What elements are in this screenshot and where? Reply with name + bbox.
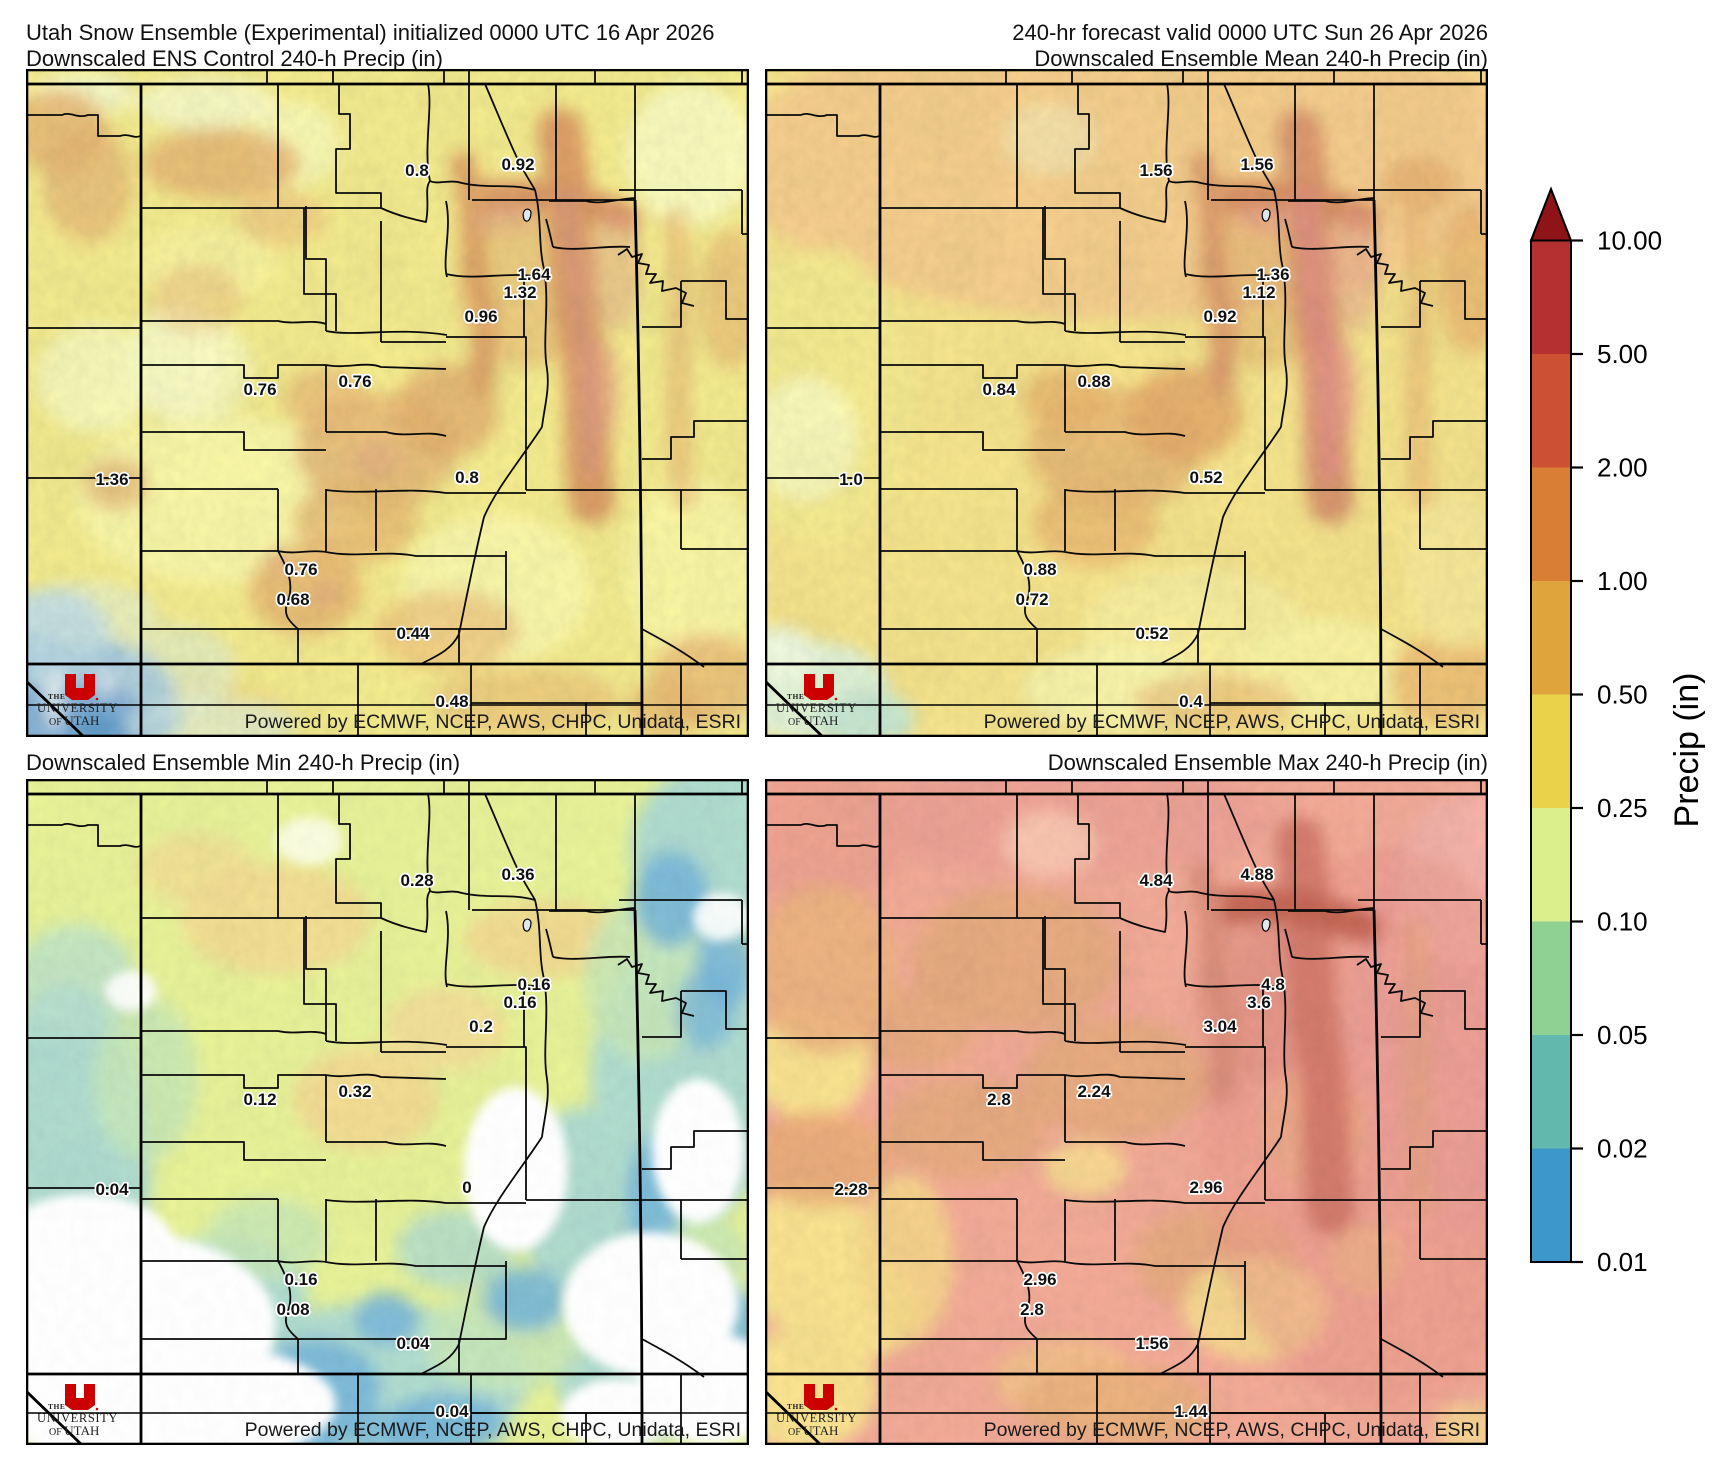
svg-text:0: 0 xyxy=(462,1178,471,1197)
svg-text:0.92: 0.92 xyxy=(1203,307,1236,326)
svg-text:0.48: 0.48 xyxy=(435,692,468,711)
svg-text:0.10: 0.10 xyxy=(1597,907,1648,937)
svg-text:0.84: 0.84 xyxy=(982,380,1016,399)
svg-text:1.64: 1.64 xyxy=(517,265,551,284)
svg-text:1.44: 1.44 xyxy=(1174,1402,1208,1421)
svg-text:0.32: 0.32 xyxy=(338,1082,371,1101)
svg-text:Powered by ECMWF, NCEP, AWS, C: Powered by ECMWF, NCEP, AWS, CHPC, Unida… xyxy=(245,711,741,733)
svg-text:2.96: 2.96 xyxy=(1189,1178,1222,1197)
svg-text:0.88: 0.88 xyxy=(1077,372,1110,391)
svg-text:1.56: 1.56 xyxy=(1139,161,1172,180)
svg-text:0.4: 0.4 xyxy=(1179,692,1203,711)
svg-text:0.12: 0.12 xyxy=(243,1090,276,1109)
svg-text:0.04: 0.04 xyxy=(396,1334,430,1353)
svg-text:10.00: 10.00 xyxy=(1597,226,1662,256)
svg-text:2.24: 2.24 xyxy=(1077,1082,1111,1101)
svg-text:1.36: 1.36 xyxy=(1256,265,1289,284)
svg-text:0.76: 0.76 xyxy=(243,380,276,399)
svg-text:0.16: 0.16 xyxy=(284,1270,317,1289)
svg-text:0.76: 0.76 xyxy=(284,560,317,579)
svg-text:THE: THE xyxy=(48,692,65,701)
svg-text:Powered by ECMWF, NCEP, AWS, C: Powered by ECMWF, NCEP, AWS, CHPC, Unida… xyxy=(984,1419,1480,1441)
svg-text:4.84: 4.84 xyxy=(1139,871,1173,890)
svg-text:0.68: 0.68 xyxy=(276,590,309,609)
svg-text:0.01: 0.01 xyxy=(1597,1247,1648,1277)
svg-text:2.8: 2.8 xyxy=(987,1090,1011,1109)
svg-text:1.36: 1.36 xyxy=(95,470,128,489)
svg-text:0.16: 0.16 xyxy=(517,975,550,994)
svg-text:0.52: 0.52 xyxy=(1189,468,1222,487)
svg-text:Powered by ECMWF, NCEP, AWS, C: Powered by ECMWF, NCEP, AWS, CHPC, Unida… xyxy=(984,711,1480,733)
svg-text:0.50: 0.50 xyxy=(1597,680,1648,710)
svg-text:0.44: 0.44 xyxy=(396,624,430,643)
svg-text:1.56: 1.56 xyxy=(1240,155,1273,174)
svg-text:1.0: 1.0 xyxy=(839,470,863,489)
svg-text:4.8: 4.8 xyxy=(1261,975,1285,994)
svg-text:0.88: 0.88 xyxy=(1023,560,1056,579)
svg-text:240-hr forecast valid 0000 UTC: 240-hr forecast valid 0000 UTC Sun 26 Ap… xyxy=(1012,20,1488,45)
svg-text:2.96: 2.96 xyxy=(1023,1270,1056,1289)
svg-text:1.12: 1.12 xyxy=(1242,283,1275,302)
svg-text:Powered by ECMWF, NCEP, AWS, C: Powered by ECMWF, NCEP, AWS, CHPC, Unida… xyxy=(245,1419,741,1441)
svg-text:0.28: 0.28 xyxy=(400,871,433,890)
svg-text:Downscaled Ensemble Mean 240-h: Downscaled Ensemble Mean 240-h Precip (i… xyxy=(1034,46,1488,71)
svg-text:0.96: 0.96 xyxy=(464,307,497,326)
svg-text:0.8: 0.8 xyxy=(455,468,479,487)
svg-text:3.04: 3.04 xyxy=(1203,1017,1237,1036)
svg-text:0.16: 0.16 xyxy=(503,993,536,1012)
svg-text:2.28: 2.28 xyxy=(834,1180,867,1199)
svg-text:Downscaled Ensemble Max 240-h: Downscaled Ensemble Max 240-h Precip (in… xyxy=(1048,750,1488,775)
svg-text:5.00: 5.00 xyxy=(1597,339,1648,369)
svg-text:2.00: 2.00 xyxy=(1597,453,1648,483)
svg-text:0.76: 0.76 xyxy=(338,372,371,391)
svg-text:0.72: 0.72 xyxy=(1015,590,1048,609)
svg-text:0.08: 0.08 xyxy=(276,1300,309,1319)
svg-text:1.56: 1.56 xyxy=(1135,1334,1168,1353)
svg-text:0.2: 0.2 xyxy=(469,1017,493,1036)
svg-text:THE: THE xyxy=(48,1402,65,1411)
svg-text:Downscaled ENS Control 240-h P: Downscaled ENS Control 240-h Precip (in) xyxy=(26,46,443,71)
svg-text:Downscaled Ensemble Min 240-h: Downscaled Ensemble Min 240-h Precip (in… xyxy=(26,750,460,775)
svg-text:0.04: 0.04 xyxy=(435,1402,469,1421)
svg-text:Precip (in): Precip (in) xyxy=(1668,673,1706,828)
svg-text:1.32: 1.32 xyxy=(503,283,536,302)
svg-text:0.36: 0.36 xyxy=(501,865,534,884)
svg-text:0.52: 0.52 xyxy=(1135,624,1168,643)
svg-text:4.88: 4.88 xyxy=(1240,865,1273,884)
svg-text:0.8: 0.8 xyxy=(405,161,429,180)
svg-text:Utah Snow Ensemble (Experiment: Utah Snow Ensemble (Experimental) initia… xyxy=(26,20,714,45)
svg-text:3.6: 3.6 xyxy=(1247,993,1271,1012)
svg-text:0.92: 0.92 xyxy=(501,155,534,174)
svg-text:THE: THE xyxy=(787,1402,804,1411)
svg-text:0.05: 0.05 xyxy=(1597,1020,1648,1050)
svg-text:0.02: 0.02 xyxy=(1597,1134,1648,1164)
svg-text:2.8: 2.8 xyxy=(1020,1300,1044,1319)
svg-text:0.04: 0.04 xyxy=(95,1180,129,1199)
svg-text:1.00: 1.00 xyxy=(1597,566,1648,596)
svg-text:THE: THE xyxy=(787,692,804,701)
svg-text:0.25: 0.25 xyxy=(1597,793,1648,823)
